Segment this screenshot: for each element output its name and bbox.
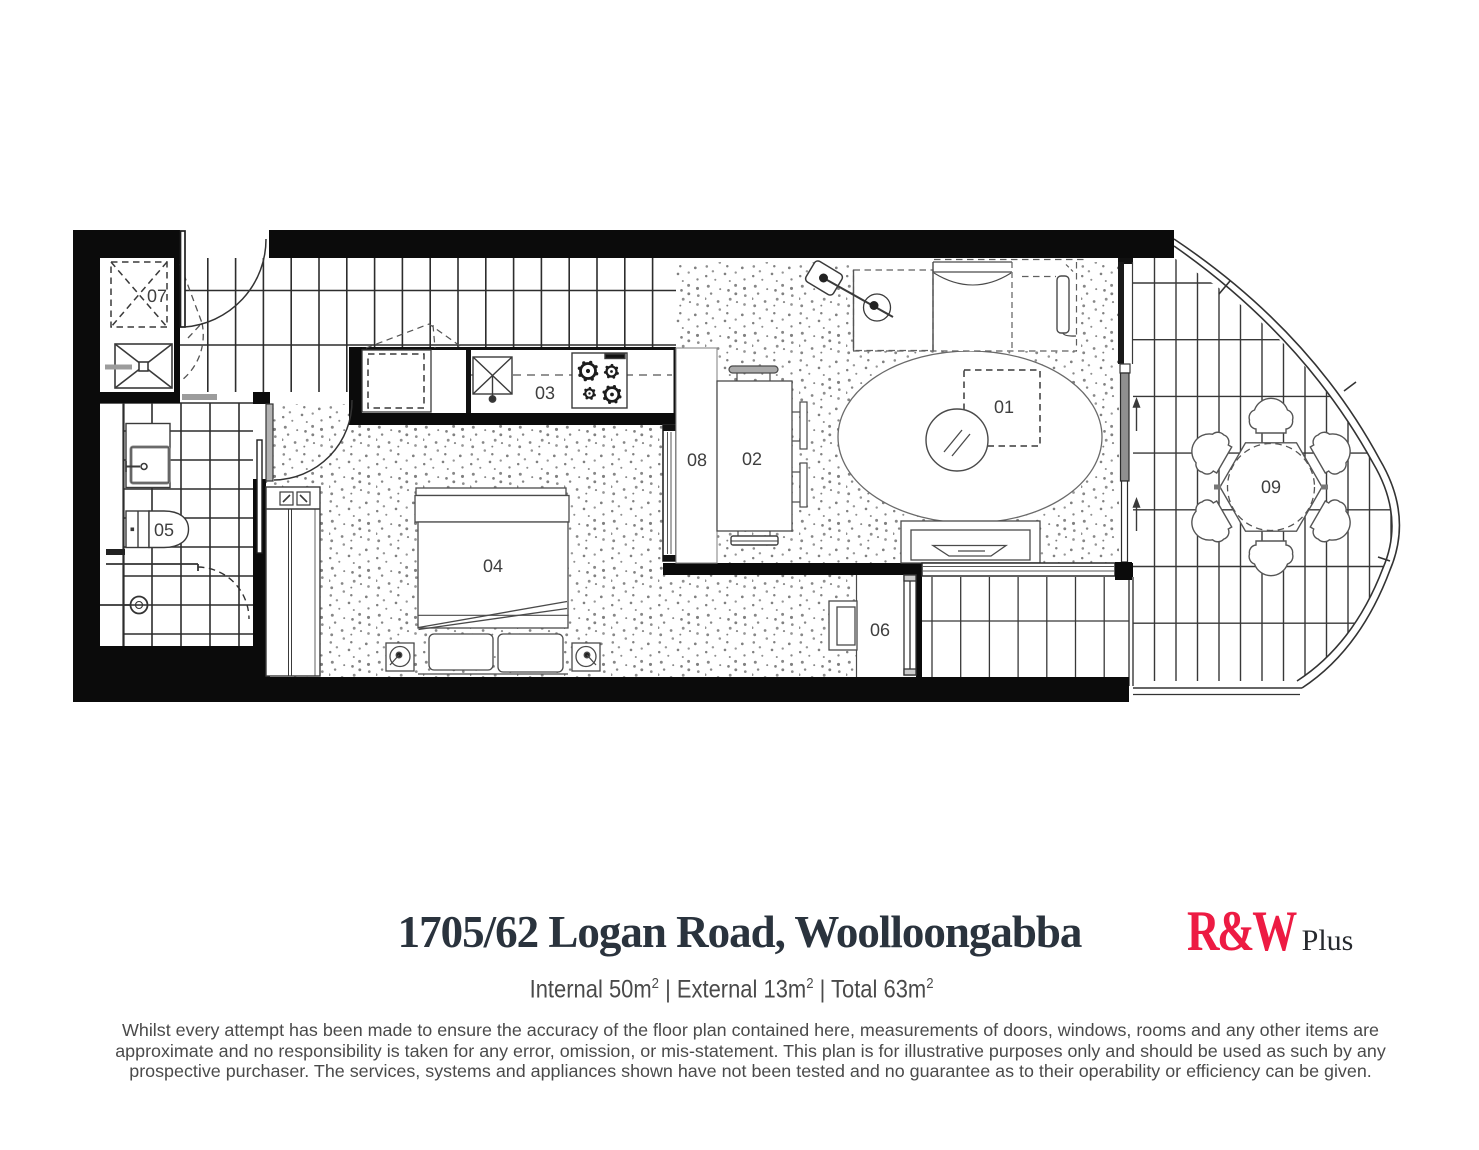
svg-text:09: 09	[1261, 477, 1281, 497]
svg-text:05: 05	[154, 520, 174, 540]
svg-text:03: 03	[535, 383, 555, 403]
svg-text:01: 01	[994, 397, 1014, 417]
svg-text:07: 07	[147, 286, 167, 306]
svg-text:02: 02	[742, 449, 762, 469]
svg-text:06: 06	[870, 620, 890, 640]
svg-text:04: 04	[483, 556, 503, 576]
svg-text:08: 08	[687, 450, 707, 470]
